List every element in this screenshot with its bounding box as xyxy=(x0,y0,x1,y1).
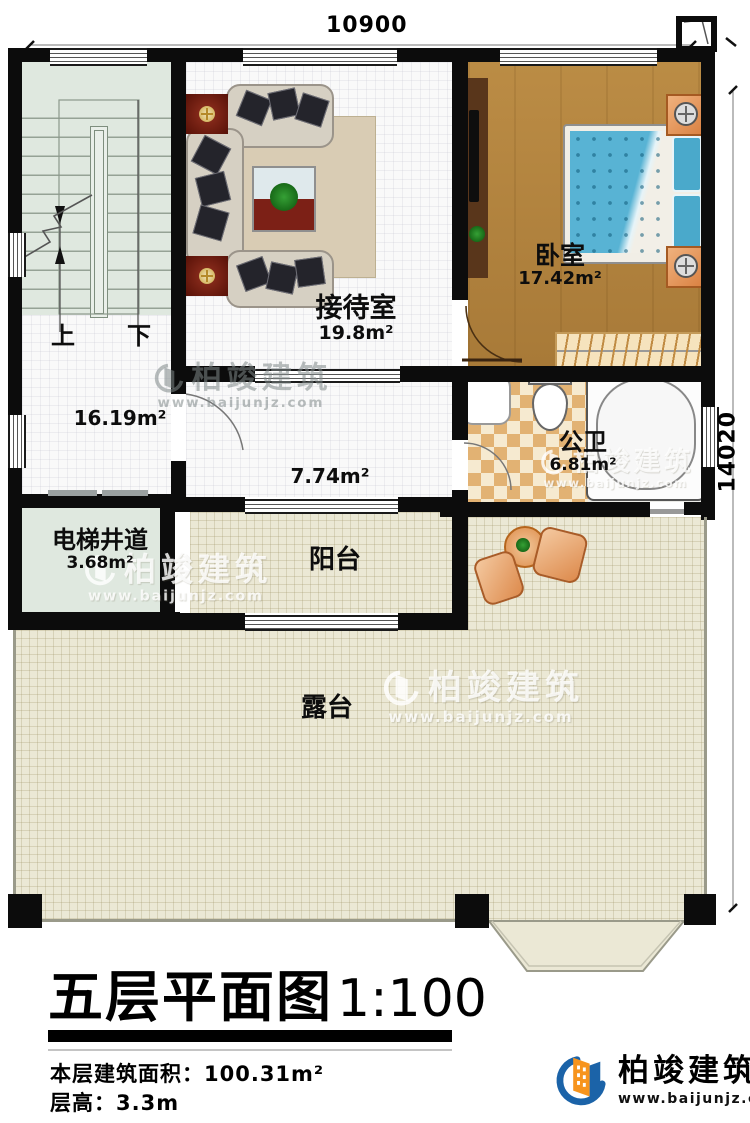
column xyxy=(455,894,489,928)
wall xyxy=(397,48,500,62)
room-name: 露台 xyxy=(267,694,387,722)
wall xyxy=(684,502,715,515)
room-area: 19.8m² xyxy=(276,323,436,344)
watermark: 柏竣建筑 www.baijunjz.com xyxy=(150,362,332,410)
room-name: 电梯井道 xyxy=(25,528,175,554)
window xyxy=(8,415,26,468)
room-area: 17.42m² xyxy=(480,269,640,288)
door-arc-bedroom xyxy=(466,306,522,362)
wall xyxy=(175,613,245,630)
room-label-bedroom: 卧室 17.42m² xyxy=(480,242,640,288)
title-scale: 1:100 xyxy=(337,969,487,1029)
brand-website: www.baijunjz.com xyxy=(618,1092,750,1106)
dimension-right: 14020 xyxy=(716,421,741,493)
watermark-name: 柏竣建筑 xyxy=(428,671,584,705)
brand-logo-icon xyxy=(150,362,186,394)
door-arc-bathroom xyxy=(464,443,511,490)
dimension-top: 10900 xyxy=(326,13,408,38)
terrace-border xyxy=(704,517,707,921)
dim-tick xyxy=(726,38,736,46)
drawing-title: 五层平面图 1:100 xyxy=(48,952,487,1032)
wall xyxy=(171,461,186,497)
wall xyxy=(8,494,175,508)
elevator-door xyxy=(102,490,148,496)
watermark: 柏竣建筑 www.baijunjz.com xyxy=(378,668,584,725)
column xyxy=(684,894,716,925)
elevator-door xyxy=(48,490,97,496)
wall xyxy=(8,277,22,415)
wall xyxy=(171,48,186,366)
stairs-up-label: 上 xyxy=(48,324,78,350)
wall xyxy=(8,62,22,233)
room-name: 接待室 xyxy=(276,294,436,323)
stair-break-line xyxy=(16,195,92,262)
room-label-balcony: 阳台 xyxy=(275,546,395,574)
floor-height-value: 3.3m xyxy=(116,1091,179,1115)
floor-plan-page: 柏竣建筑 www.baijunjz.com 柏竣建筑 www.baijunjz.… xyxy=(0,0,750,1123)
watermark-site: www.baijunjz.com xyxy=(388,710,573,725)
chimney xyxy=(676,16,717,52)
brand-text-block: 柏竣建筑 www.baijunjz.com xyxy=(618,1056,750,1106)
room-name: 公卫 xyxy=(523,430,643,456)
room-area: 6.81m² xyxy=(523,456,643,474)
terrace-border xyxy=(13,919,457,922)
terrace-border xyxy=(13,630,16,922)
window xyxy=(50,48,147,66)
brand-logo: 柏竣建筑 www.baijunjz.com xyxy=(548,1052,750,1110)
floor-area-label: 本层建筑面积： xyxy=(50,1062,204,1086)
watermark-name: 柏竣建筑 xyxy=(191,363,331,394)
title-underline-thin xyxy=(48,1049,452,1051)
title-underline-bar xyxy=(48,1030,452,1042)
window xyxy=(500,48,657,66)
wall xyxy=(8,612,180,630)
brand-logo-icon xyxy=(548,1052,610,1110)
window xyxy=(8,233,26,277)
column xyxy=(8,894,42,928)
room-area: 7.74m² xyxy=(270,466,390,488)
stairs-down-label: 下 xyxy=(124,324,154,350)
room-label-terrace: 露台 xyxy=(267,694,387,722)
room-area: 3.68m² xyxy=(25,554,175,572)
wall xyxy=(175,497,245,512)
title-text: 五层平面图 xyxy=(48,952,333,1032)
sliding-window xyxy=(245,615,398,631)
wall xyxy=(8,468,22,630)
room-name: 卧室 xyxy=(480,242,640,269)
stair-arrow xyxy=(55,246,65,264)
floor-height-line: 层高：3.3m xyxy=(50,1087,179,1117)
watermark-site: www.baijunjz.com xyxy=(88,589,264,603)
room-label-hall: 16.19m² xyxy=(60,408,180,430)
bay-window xyxy=(489,921,684,971)
sliding-window xyxy=(245,499,398,514)
room-label-elevator: 电梯井道 3.68m² xyxy=(25,528,175,572)
room-label-bathroom: 公卫 6.81m² xyxy=(523,430,643,474)
watermark-row: 柏竣建筑 xyxy=(150,362,332,394)
floor-height-label: 层高： xyxy=(50,1091,116,1115)
wall xyxy=(147,48,243,62)
window xyxy=(243,48,397,66)
wall xyxy=(452,382,468,440)
room-area: 16.19m² xyxy=(60,408,180,430)
wall xyxy=(452,48,468,300)
wall xyxy=(701,62,715,407)
floor-area-line: 本层建筑面积：100.31m² xyxy=(50,1058,324,1088)
wall xyxy=(440,502,650,517)
watermark-row: 柏竣建筑 xyxy=(378,668,584,708)
room-label-reception: 接待室 19.8m² xyxy=(276,294,436,344)
watermark-site: www.baijunjz.com xyxy=(158,396,325,410)
room-label-corridor: 7.74m² xyxy=(270,466,390,488)
room-name: 阳台 xyxy=(275,546,395,574)
wall xyxy=(8,48,50,62)
watermark-site: www.baijunjz.com xyxy=(544,478,688,490)
brand-name: 柏竣建筑 xyxy=(618,1056,750,1087)
floor-area-value: 100.31m² xyxy=(204,1062,324,1086)
wall xyxy=(400,366,715,382)
